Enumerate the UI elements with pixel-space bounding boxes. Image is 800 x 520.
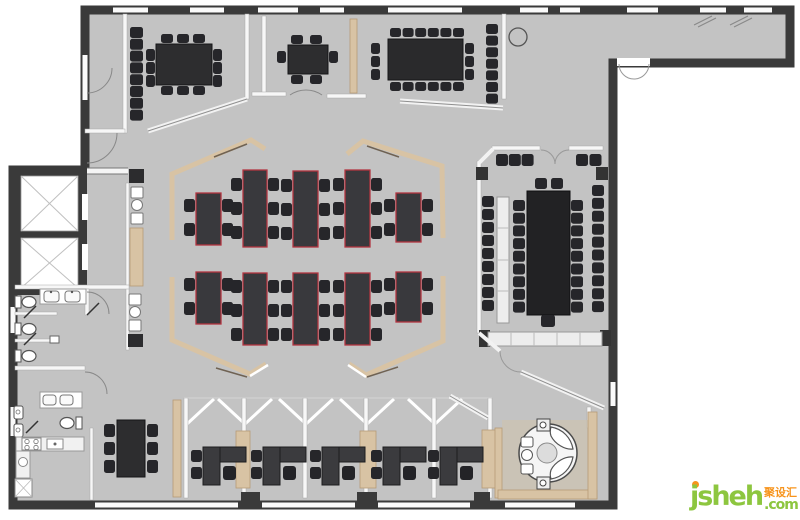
confroom-chairs-right bbox=[571, 225, 583, 236]
sofa-seat bbox=[521, 464, 533, 474]
desk-chairs bbox=[384, 199, 395, 212]
floorplan-svg bbox=[0, 0, 800, 520]
guest-chairs bbox=[371, 450, 382, 462]
meeting2-wall bbox=[262, 16, 266, 96]
office-wall bbox=[184, 398, 188, 498]
desk-chairs bbox=[268, 178, 279, 191]
meeting1-wall bbox=[245, 14, 249, 99]
confroom-chairs-right bbox=[571, 200, 583, 211]
confroom-chairs-right bbox=[571, 264, 583, 275]
confroom-chairs-left bbox=[513, 276, 525, 287]
office-chair bbox=[460, 466, 473, 480]
service-cabinet bbox=[129, 169, 144, 183]
confroom-wall-chairs bbox=[482, 235, 494, 246]
meeting1-wall bbox=[123, 14, 127, 133]
confroom-credenza bbox=[488, 332, 602, 346]
open-desk bbox=[293, 273, 318, 345]
desk-chairs bbox=[184, 199, 195, 212]
confroom-wall-chairs bbox=[592, 211, 604, 222]
meeting2-chairs bbox=[291, 75, 303, 84]
meeting1-wall-chairs bbox=[130, 62, 143, 73]
water-station bbox=[130, 307, 141, 318]
boardroom-top-table bbox=[388, 39, 463, 80]
office-chair bbox=[403, 466, 416, 480]
desk-chairs bbox=[184, 223, 195, 236]
open-desk bbox=[396, 193, 421, 242]
desk-chairs bbox=[319, 203, 330, 216]
desk-chairs bbox=[268, 226, 279, 239]
guest-chairs bbox=[310, 467, 321, 479]
office-desk bbox=[203, 447, 220, 485]
toilet-tank bbox=[15, 350, 21, 362]
desk-chairs bbox=[333, 304, 344, 317]
confroom-wall-chairs bbox=[592, 224, 604, 235]
meeting1-chairs bbox=[146, 62, 155, 74]
desk-chairs bbox=[333, 226, 344, 239]
desk-chairs bbox=[371, 328, 382, 341]
boardroom-top-chairs bbox=[390, 28, 401, 37]
confroom-chairs-left bbox=[513, 200, 525, 211]
meeting1-wall-chairs bbox=[130, 39, 143, 50]
brand-text: jsheh bbox=[690, 483, 762, 510]
meeting1-chairs bbox=[177, 34, 189, 43]
confroom-chairs-end bbox=[535, 178, 547, 189]
open-desk bbox=[345, 273, 370, 345]
guest-chairs bbox=[310, 450, 321, 462]
boardroom-top-chairs bbox=[465, 56, 474, 67]
confroom-wall-chairs bbox=[592, 301, 604, 312]
boardroom-top-chairs bbox=[453, 28, 464, 37]
guest-chairs bbox=[428, 467, 439, 479]
round-column bbox=[509, 28, 527, 46]
confroom-wall-chairs bbox=[482, 274, 494, 285]
lounge-wood bbox=[495, 428, 502, 498]
meeting1-wall-chairs bbox=[130, 74, 143, 85]
office-desk bbox=[280, 447, 306, 462]
meeting2-chairs bbox=[277, 51, 286, 63]
meeting2-wood bbox=[350, 19, 357, 93]
office-desk bbox=[383, 447, 400, 485]
brand-suffix-text: .com bbox=[764, 497, 798, 513]
desk-chairs bbox=[371, 226, 382, 239]
confroom-chairs-right bbox=[571, 289, 583, 300]
desk-chairs bbox=[281, 280, 292, 293]
sink-faucet bbox=[50, 291, 52, 293]
elevator-door bbox=[82, 194, 88, 220]
lounge-fixture bbox=[540, 422, 546, 428]
wc-wall bbox=[15, 285, 129, 289]
breakroom-chairs bbox=[104, 424, 115, 437]
elevator-door bbox=[82, 244, 88, 270]
desk-chairs bbox=[231, 202, 242, 215]
boardroom-top-wall-chairs bbox=[486, 59, 498, 69]
confroom-chairs-left bbox=[513, 225, 525, 236]
toilet-bowl bbox=[60, 418, 74, 429]
confroom-wall-chairs bbox=[482, 300, 494, 311]
guest-chairs bbox=[191, 450, 202, 462]
office-desk bbox=[220, 447, 246, 462]
boardroom-top-chairs bbox=[371, 43, 380, 54]
boardroom-top-wall-chairs bbox=[486, 82, 498, 92]
meeting1-wall-chairs bbox=[130, 27, 143, 38]
boardroom-top-chairs bbox=[428, 82, 439, 91]
urinal bbox=[14, 406, 23, 419]
confroom-wall-chairs bbox=[592, 237, 604, 248]
wc-wall bbox=[15, 366, 85, 370]
boardroom-top-chairs bbox=[371, 56, 380, 67]
lounge-fixture bbox=[540, 480, 546, 486]
meeting1-chairs bbox=[213, 75, 222, 87]
breakroom-chairs bbox=[147, 460, 158, 473]
kitchen-basin bbox=[19, 458, 28, 467]
breakroom-table bbox=[117, 420, 145, 477]
desk-chairs bbox=[319, 304, 330, 317]
boardroom-top-wall-chairs bbox=[486, 70, 498, 80]
wc-sink bbox=[43, 395, 56, 405]
meeting1-chairs bbox=[193, 34, 205, 43]
confroom-chairs-right bbox=[571, 302, 583, 313]
confroom-chairs-left bbox=[513, 251, 525, 262]
door-stub bbox=[357, 492, 377, 501]
door-stub bbox=[241, 492, 260, 501]
confroom-top-chairs bbox=[496, 154, 508, 166]
boardroom-top-wall-chairs bbox=[486, 47, 498, 57]
office-desk bbox=[339, 447, 365, 462]
desk-chairs bbox=[371, 178, 382, 191]
confroom-wall-chairs bbox=[592, 275, 604, 286]
open-desk bbox=[243, 170, 267, 247]
meeting1-table bbox=[156, 44, 212, 85]
meeting1-chairs bbox=[146, 75, 155, 87]
water-station bbox=[131, 213, 143, 224]
confroom-chairs-right bbox=[571, 276, 583, 287]
service-cabinet bbox=[128, 334, 143, 347]
breakroom-chairs bbox=[147, 424, 158, 437]
meeting2-wall bbox=[327, 94, 366, 98]
confroom-wall-chairs bbox=[592, 185, 604, 196]
boardroom-top-wall-chairs bbox=[486, 36, 498, 46]
open-desk bbox=[293, 171, 318, 247]
desk-chairs bbox=[333, 178, 344, 191]
confroom-top-chairs bbox=[509, 154, 521, 166]
sofa-seat bbox=[522, 450, 533, 461]
boardroom-top-wall-chairs bbox=[486, 24, 498, 34]
confroom-chairs-end bbox=[551, 178, 563, 189]
water-station bbox=[132, 200, 143, 211]
confroom-wall bbox=[569, 146, 603, 150]
boardroom-top-chairs bbox=[440, 28, 451, 37]
desk-chairs bbox=[422, 223, 433, 236]
desk-chairs bbox=[319, 179, 330, 192]
open-desk bbox=[396, 272, 421, 322]
wc-sink bbox=[60, 395, 73, 405]
desk-chairs bbox=[268, 202, 279, 215]
desk-chairs bbox=[333, 202, 344, 215]
desk-chairs bbox=[231, 304, 242, 317]
desk-chairs bbox=[333, 328, 344, 341]
toilet-bowl bbox=[22, 351, 36, 362]
corridor-door-gap bbox=[617, 58, 650, 66]
confroom-wall-chairs bbox=[482, 248, 494, 259]
office-desk bbox=[322, 447, 339, 485]
meeting2-wall bbox=[252, 92, 286, 96]
meeting1-wall-chairs bbox=[130, 51, 143, 62]
confroom-top-chairs bbox=[522, 154, 534, 166]
desk-chairs bbox=[184, 278, 195, 291]
meeting2-chairs bbox=[310, 35, 322, 44]
desk-chairs bbox=[319, 328, 330, 341]
meeting2-chairs bbox=[329, 51, 338, 63]
meeting1-wall-chairs bbox=[130, 110, 143, 121]
desk-chairs bbox=[422, 302, 433, 315]
desk-chairs bbox=[281, 203, 292, 216]
office-wood bbox=[482, 430, 496, 488]
confroom-wall-chairs bbox=[592, 198, 604, 209]
confroom-table bbox=[527, 191, 570, 315]
desk-chairs bbox=[268, 280, 279, 293]
floorplan-page: jsheh 聚设汇 .com bbox=[0, 0, 800, 520]
desk-chairs bbox=[268, 304, 279, 317]
desk-chairs bbox=[184, 302, 195, 315]
lounge-wood bbox=[498, 490, 597, 499]
office-desk bbox=[400, 447, 426, 462]
meeting1-chairs bbox=[177, 86, 189, 95]
boardroom-top-chairs bbox=[415, 28, 426, 37]
desk-chairs bbox=[319, 280, 330, 293]
meeting2-chairs bbox=[310, 75, 322, 84]
meeting1-wall bbox=[85, 129, 125, 133]
urinal bbox=[14, 424, 23, 437]
guest-chairs bbox=[251, 450, 262, 462]
toilet-tank bbox=[76, 417, 82, 429]
office-chair bbox=[223, 466, 236, 480]
confroom-wall-chairs bbox=[592, 262, 604, 273]
boardroom-top-chairs bbox=[403, 28, 414, 37]
office-desk bbox=[263, 447, 280, 485]
boardroom-top-chairs bbox=[465, 69, 474, 80]
confroom-wall-chairs bbox=[482, 209, 494, 220]
confroom-wall-chairs bbox=[482, 222, 494, 233]
desk-chairs bbox=[371, 304, 382, 317]
confroom-wall-chairs bbox=[482, 261, 494, 272]
office-chair bbox=[342, 466, 355, 480]
meeting1-chairs bbox=[146, 49, 155, 61]
boardroom-top-wall bbox=[502, 14, 506, 99]
boardroom-top-chairs bbox=[453, 82, 464, 91]
desk-chairs bbox=[281, 227, 292, 240]
toilet-tank bbox=[15, 296, 21, 308]
desk-chairs bbox=[333, 280, 344, 293]
toilet-tank bbox=[15, 323, 21, 335]
desk-chairs bbox=[281, 328, 292, 341]
boardroom-top-chairs bbox=[390, 82, 401, 91]
confroom-wall-chairs bbox=[592, 250, 604, 261]
guest-chairs bbox=[251, 467, 262, 479]
sink-faucet bbox=[71, 291, 73, 293]
guest-chairs bbox=[428, 450, 439, 462]
meeting2-chairs bbox=[291, 35, 303, 44]
boardroom-top-chairs bbox=[428, 28, 439, 37]
confroom-chairs-right bbox=[571, 238, 583, 249]
guest-chairs bbox=[191, 467, 202, 479]
desk-chairs bbox=[371, 202, 382, 215]
office-wood bbox=[173, 400, 181, 497]
sofa-seat bbox=[521, 437, 533, 447]
toilet-bowl bbox=[22, 297, 36, 308]
confroom-chairs-right bbox=[571, 251, 583, 262]
wc-stall bbox=[15, 312, 57, 315]
office-desk bbox=[457, 447, 483, 462]
toilet-bowl bbox=[22, 324, 36, 335]
confroom-chairs-left bbox=[513, 213, 525, 224]
meeting1-chairs bbox=[193, 86, 205, 95]
water-station bbox=[131, 187, 143, 198]
meeting1-chairs bbox=[161, 86, 173, 95]
desk-chairs bbox=[384, 278, 395, 291]
desk-chairs bbox=[231, 178, 242, 191]
office-desk bbox=[440, 447, 457, 485]
boardroom-top-chairs bbox=[403, 82, 414, 91]
meeting1-chairs bbox=[161, 34, 173, 43]
door-stub bbox=[474, 492, 490, 501]
open-desk bbox=[196, 193, 221, 245]
confroom-top-chairs bbox=[590, 154, 602, 166]
boardroom-top-chairs bbox=[440, 82, 451, 91]
bench bbox=[130, 228, 143, 286]
brand-watermark: jsheh 聚设汇 .com bbox=[688, 481, 800, 519]
confroom-chairs-end bbox=[541, 315, 555, 327]
water-station bbox=[129, 320, 141, 331]
confroom-chairs-left bbox=[513, 238, 525, 249]
desk-chairs bbox=[422, 278, 433, 291]
meeting2-table bbox=[288, 45, 328, 74]
confroom-wall-chairs bbox=[482, 196, 494, 207]
confroom-wall bbox=[492, 146, 540, 150]
desk-chairs bbox=[384, 302, 395, 315]
breakroom-chairs bbox=[104, 442, 115, 455]
confroom-chairs-left bbox=[513, 264, 525, 275]
confroom-chairs-left bbox=[513, 289, 525, 300]
guest-chairs bbox=[371, 467, 382, 479]
confroom-chairs-left bbox=[513, 302, 525, 313]
meeting1-chairs bbox=[213, 49, 222, 61]
confroom-wall-chairs bbox=[482, 287, 494, 298]
desk-chairs bbox=[281, 179, 292, 192]
wc-divider-box bbox=[50, 336, 59, 343]
desk-chairs bbox=[231, 226, 242, 239]
open-desk bbox=[345, 170, 370, 247]
desk-chairs bbox=[268, 328, 279, 341]
water-station bbox=[129, 294, 141, 305]
open-desk bbox=[196, 272, 221, 324]
confroom-chairs-right bbox=[571, 213, 583, 224]
meeting1-wall-chairs bbox=[130, 98, 143, 109]
office-wall bbox=[432, 398, 436, 498]
desk-chairs bbox=[319, 227, 330, 240]
breakroom-chairs bbox=[147, 442, 158, 455]
sink-faucet bbox=[54, 443, 57, 446]
wall-post bbox=[476, 167, 488, 180]
boardroom-top-chairs bbox=[415, 82, 426, 91]
meeting1-wall-chairs bbox=[130, 86, 143, 97]
confroom-wall bbox=[477, 161, 481, 333]
confroom-wall-chairs bbox=[592, 288, 604, 299]
wall-post bbox=[596, 167, 608, 180]
boardroom-top-chairs bbox=[371, 69, 380, 80]
desk-chairs bbox=[384, 223, 395, 236]
desk-chairs bbox=[231, 280, 242, 293]
lounge-wood bbox=[588, 412, 597, 499]
desk-chairs bbox=[371, 280, 382, 293]
desk-chairs bbox=[281, 304, 292, 317]
office-chair bbox=[283, 466, 296, 480]
boardroom-top-wall-chairs bbox=[486, 94, 498, 104]
confroom-top-chairs bbox=[576, 154, 588, 166]
desk-chairs bbox=[422, 199, 433, 212]
boardroom-top-chairs bbox=[465, 43, 474, 54]
brand-row: jsheh 聚设汇 .com bbox=[688, 481, 800, 519]
open-desk bbox=[243, 273, 267, 345]
breakroom-chairs bbox=[104, 460, 115, 473]
breakroom-wall bbox=[90, 428, 93, 500]
round-sofa-table bbox=[537, 443, 557, 463]
meeting1-chairs bbox=[213, 62, 222, 74]
desk-chairs bbox=[231, 328, 242, 341]
